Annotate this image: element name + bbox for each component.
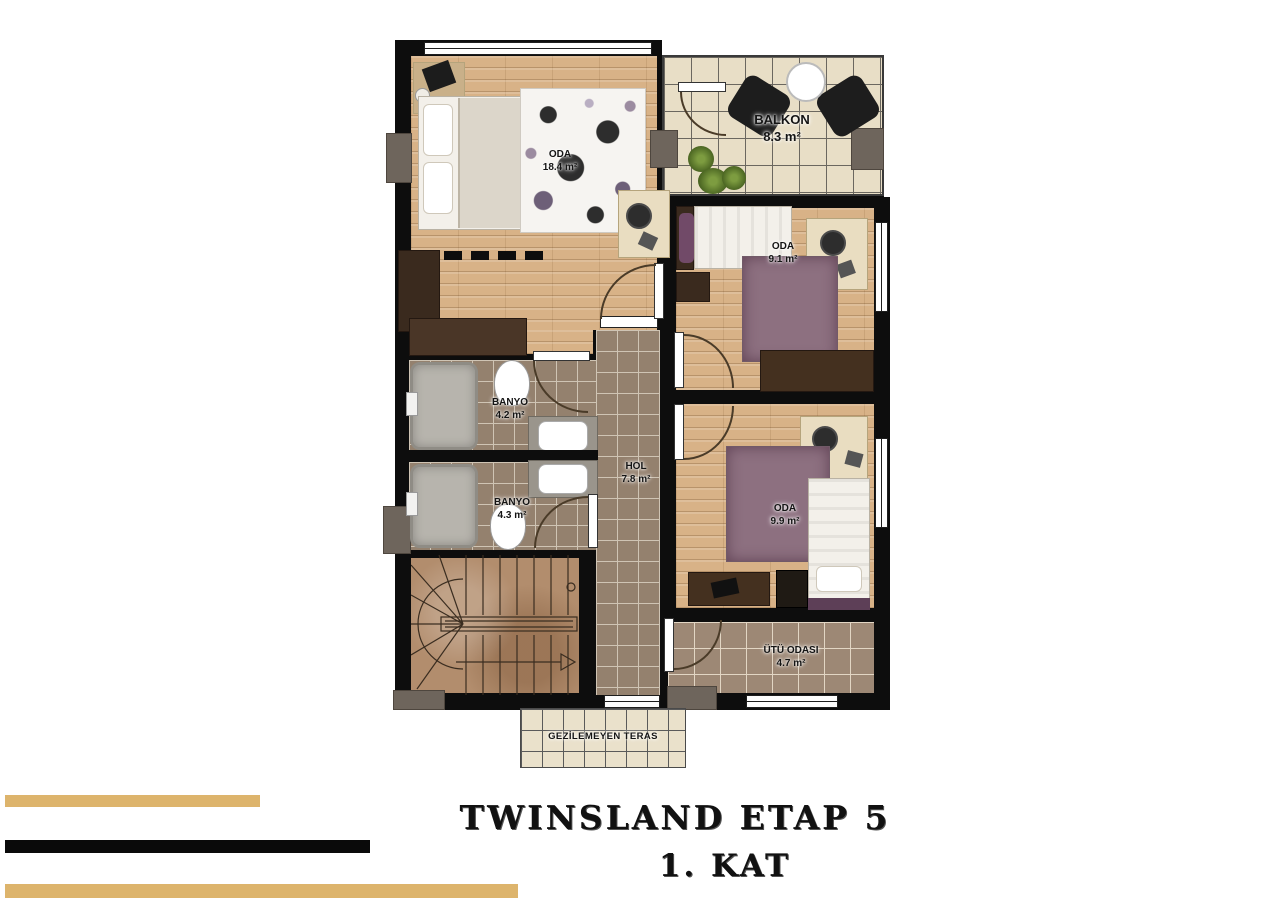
- pillow-purple: [679, 213, 694, 263]
- pillar-balcony-left: [650, 130, 678, 168]
- door-leaf-balcony: [678, 82, 726, 92]
- sink-bath2: [538, 464, 588, 494]
- room-area: 4.2 m²: [470, 409, 550, 422]
- nightstand-bedroom3: [776, 570, 808, 608]
- closet-master-bottom: [409, 318, 527, 356]
- plan-title-line1: TWINSLAND ETAP 5: [440, 798, 910, 837]
- dashed-partition: [444, 251, 462, 260]
- label-room-master: ODA 18.4 m²: [505, 148, 615, 174]
- door-leaf-ironing: [664, 618, 674, 672]
- room-hall-floor: [596, 330, 660, 695]
- plant: [722, 166, 746, 190]
- room-name: ODA: [728, 240, 838, 253]
- pillow: [423, 162, 453, 214]
- shower-door-handle: [406, 392, 418, 416]
- pillar-left-upper: [386, 133, 412, 183]
- shower-door-handle: [406, 492, 418, 516]
- room-area: 4.7 m²: [726, 657, 856, 670]
- room-area: 9.9 m²: [730, 515, 840, 528]
- label-room-bath2: BANYO 4.3 m²: [472, 496, 552, 522]
- room-name: ÜTÜ ODASI: [726, 644, 856, 657]
- label-room-hall: HOL 7.8 m²: [606, 460, 666, 486]
- room-area: 9.1 m²: [728, 253, 838, 266]
- window-hall-bottom: [604, 695, 660, 708]
- window-master-top: [424, 42, 652, 55]
- door-leaf-bath2: [588, 494, 598, 548]
- rug-bedroom2: [742, 256, 838, 362]
- window-bedroom3-right: [875, 438, 888, 528]
- room-name: BANYO: [470, 396, 550, 409]
- room-name: ODA: [730, 502, 840, 515]
- room-area: 7.8 m²: [606, 473, 666, 486]
- window-ironing-bottom: [746, 695, 838, 708]
- pillow: [816, 566, 862, 592]
- dashed-partition: [471, 251, 489, 260]
- nightstand-bedroom2: [676, 272, 710, 302]
- staircase: [411, 555, 579, 695]
- room-name: BALKON: [722, 112, 842, 129]
- room-name: ODA: [505, 148, 615, 161]
- label-room-ironing: ÜTÜ ODASI 4.7 m²: [726, 644, 856, 670]
- sink-bath1: [538, 421, 588, 451]
- dashed-partition: [525, 251, 543, 260]
- door-leaf-bath1: [533, 351, 590, 361]
- pillar-bottom-center: [667, 686, 717, 710]
- wardrobe-bedroom2: [760, 350, 874, 392]
- label-room-balcony: BALKON 8.3 m²: [722, 112, 842, 146]
- label-room-bedroom3: ODA 9.9 m²: [730, 502, 840, 528]
- room-area: 18.4 m²: [505, 161, 615, 174]
- room-area: 4.3 m²: [472, 509, 552, 522]
- window-bedroom2-right: [875, 222, 888, 312]
- pillar-balcony-right: [851, 128, 884, 170]
- balcony-outside-right: [884, 40, 890, 197]
- decorative-bar-gold-top: [5, 795, 260, 807]
- page: { "title": { "line1": "TWINSLAND ETAP 5"…: [0, 0, 1280, 905]
- decorative-bar-black: [5, 840, 370, 853]
- chair-master: [626, 203, 652, 229]
- bed-foot-purple: [808, 598, 870, 610]
- door-leaf-bedroom2: [674, 332, 684, 388]
- balcony-table: [786, 62, 826, 102]
- door-leaf-bedroom3: [674, 404, 684, 460]
- room-name: BANYO: [472, 496, 552, 509]
- label-room-bedroom2: ODA 9.1 m²: [728, 240, 838, 266]
- decorative-bar-gold-bottom: [5, 884, 518, 898]
- terrace-name: GEZİLEMEYEN TERAS: [522, 731, 684, 743]
- dashed-partition: [498, 251, 516, 260]
- room-name: HOL: [606, 460, 666, 473]
- shower-bath1: [410, 362, 478, 450]
- pillow: [423, 104, 453, 156]
- balcony-outside-top: [662, 40, 890, 56]
- label-room-bath1: BANYO 4.2 m²: [470, 396, 550, 422]
- shower-bath2: [410, 464, 478, 548]
- plan-title-line2: 1. KAT: [560, 848, 890, 884]
- label-terrace: GEZİLEMEYEN TERAS: [522, 731, 684, 743]
- room-area: 8.3 m²: [722, 129, 842, 146]
- floor-plan: ODA 18.4 m² BALKON 8.3 m² ODA 9.1 m² BAN…: [0, 0, 1280, 905]
